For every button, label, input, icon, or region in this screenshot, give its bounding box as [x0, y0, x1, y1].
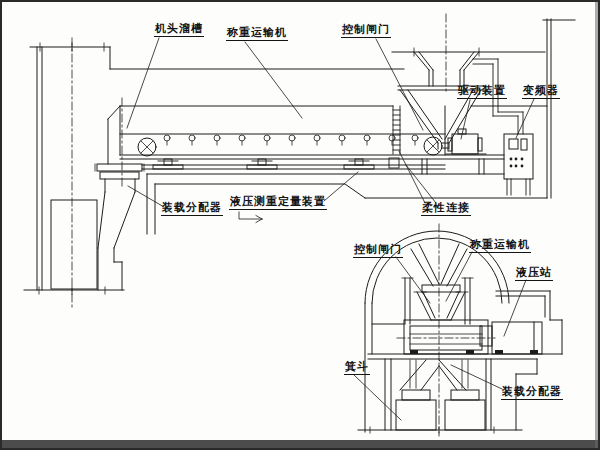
head-chute-shape	[108, 98, 122, 188]
schematic-linework	[2, 2, 600, 450]
feed-hopper	[392, 14, 545, 149]
label-hydraulic-weighing-device: 液压测重定量装置	[229, 196, 327, 210]
scan-border-right	[595, 2, 598, 450]
label-frequency-converter: 变频器	[522, 85, 560, 99]
idler-rollers	[164, 135, 418, 145]
label-detail-weighing-conveyor: 称重运输机	[469, 239, 531, 253]
label-head-chute: 机头溜槽	[154, 23, 204, 37]
label-drive-unit: 驱动装置	[457, 85, 507, 99]
main-leader-lines	[127, 38, 534, 223]
label-weighing-conveyor: 称重运输机	[226, 27, 288, 41]
label-loading-distributor: 装载分配器	[161, 202, 223, 216]
label-detail-loading-distributor: 装载分配器	[501, 386, 563, 400]
label-detail-control-gate: 控制闸门	[353, 244, 403, 258]
weighing-supports	[153, 159, 374, 169]
gate-assembly	[402, 244, 473, 324]
label-hydraulic-station: 液压站	[515, 267, 553, 281]
weighing-conveyor-body	[120, 106, 547, 174]
loading-distributor-pipe	[95, 164, 144, 290]
frequency-converter-cabinet	[504, 134, 533, 195]
scan-border-bottom	[2, 440, 600, 448]
schematic-canvas: 机头溜槽 称重运输机 控制闸门 驱动装置 变频器 装载分配器 液压测重定量装置 …	[0, 0, 600, 450]
label-flexible-connection: 柔性连接	[421, 202, 471, 216]
label-control-gate: 控制闸门	[341, 24, 391, 38]
flow-arrow-icon	[239, 212, 262, 223]
skip-buckets	[358, 359, 522, 433]
main-view	[24, 14, 575, 310]
skip-box	[51, 200, 97, 289]
label-skip-bucket: 箕斗	[344, 361, 370, 375]
right-wall	[543, 19, 575, 198]
